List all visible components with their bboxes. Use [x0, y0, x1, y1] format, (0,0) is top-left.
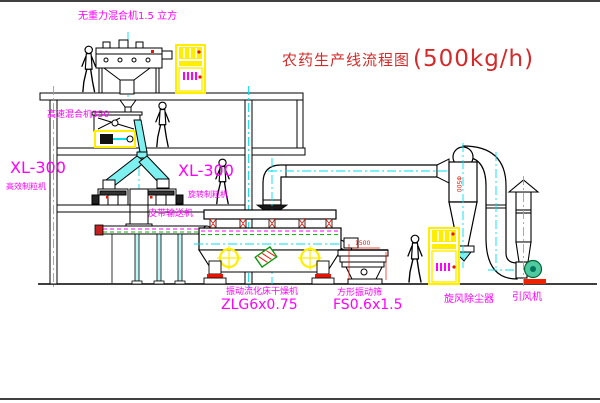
label-cyclone: 旋风除尘器 — [444, 295, 494, 305]
label-dryer-name: 振动流化床干燥机 — [226, 288, 298, 297]
belt-conveyor — [95, 225, 211, 284]
person-icon — [82, 46, 96, 91]
gravity-free-mixer — [96, 40, 172, 94]
control-cabinet-top — [176, 45, 205, 93]
person-icon — [156, 102, 169, 146]
label-granulator-left-model: XL-300 — [10, 160, 66, 176]
label-fan: 引风机 — [512, 293, 542, 303]
label-granulator-right-name: 旋转制粒机 — [188, 191, 228, 199]
cyclone-dimension-label: Φ500 — [455, 176, 462, 192]
label-granulator-right-model: XL-300 — [178, 163, 234, 179]
title-capacity: (500kg/h) — [413, 46, 534, 72]
control-cabinet-ground — [429, 228, 459, 284]
person-icon — [408, 235, 422, 282]
flow-diagram-canvas: 1500 Φ500 — [0, 0, 600, 403]
label-dryer-model: ZLG6x0.75 — [221, 298, 298, 312]
diagram-title: 农药生产线流程图 (500kg/h) — [282, 46, 534, 72]
sieve-dimension-label: 1500 — [355, 240, 370, 247]
title-text: 农药生产线流程图 — [282, 49, 410, 70]
label-sieve-model: FS0.6x1.5 — [333, 298, 403, 312]
fluid-bed-dryer — [194, 210, 353, 284]
induced-draft-fan — [524, 261, 546, 285]
label-granulator-left-name: 高效制粒机 — [6, 183, 46, 191]
mixer-gearbox — [95, 131, 135, 147]
label-gravity-mixer: 无重力混合机1.5 立方 — [78, 12, 177, 22]
label-belt-conveyor: 皮带输送机 — [148, 210, 193, 219]
label-high-speed-mixer: 高速混合机350 — [47, 111, 109, 120]
granulators — [92, 179, 183, 228]
